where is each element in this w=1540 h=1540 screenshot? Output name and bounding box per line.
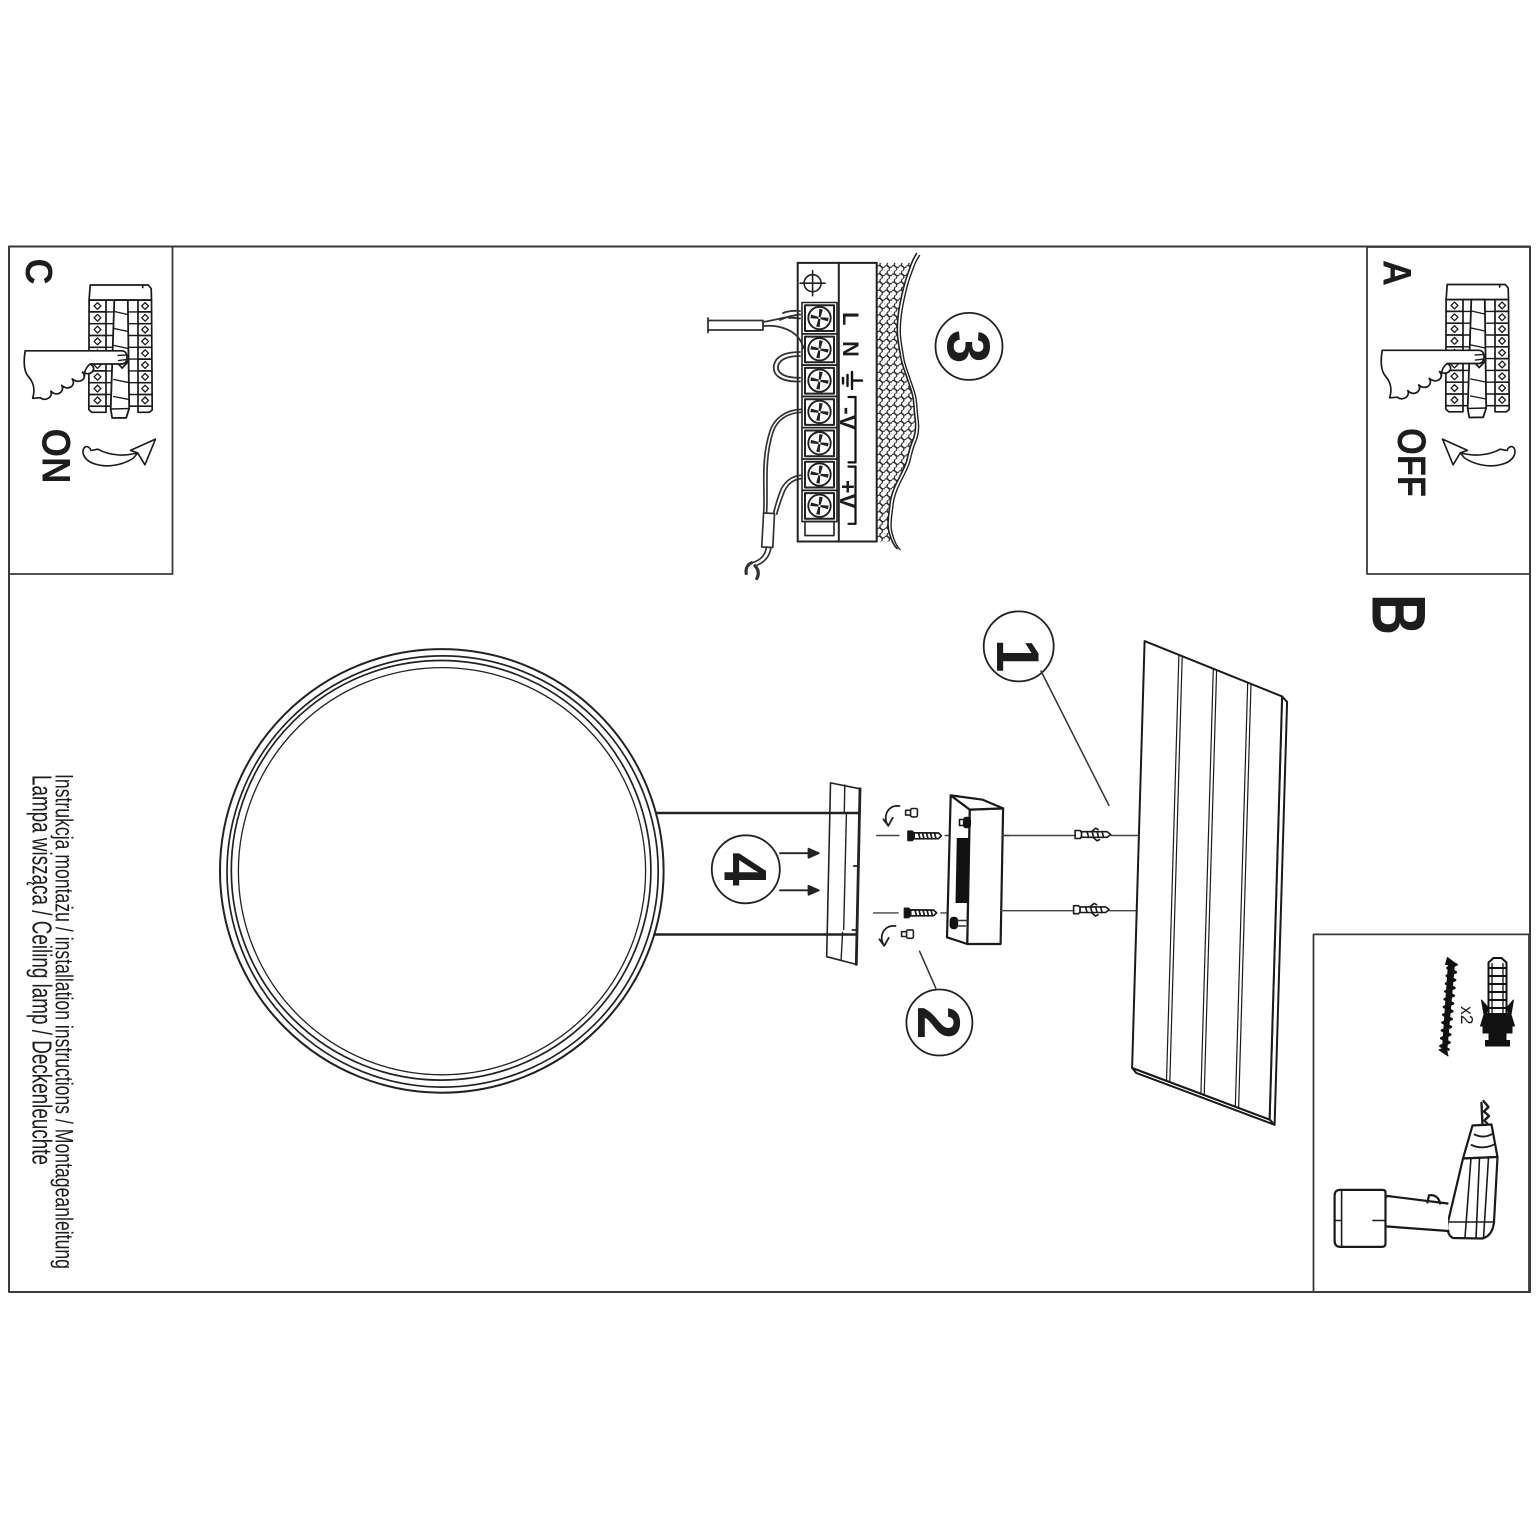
svg-text:B: B (1356, 594, 1441, 635)
svg-text:C: C (17, 259, 59, 285)
svg-text:ON: ON (34, 429, 78, 484)
svg-text:L: L (838, 312, 863, 325)
svg-text:OFF: OFF (1389, 428, 1433, 497)
svg-text:N: N (838, 341, 863, 357)
svg-text:1: 1 (984, 639, 1051, 672)
svg-text:Lampa wisząca / Ceiling lamp /: Lampa wisząca / Ceiling lamp / Deckenleu… (27, 775, 58, 1165)
svg-text:x2: x2 (1457, 1006, 1477, 1024)
svg-text:4: 4 (712, 853, 779, 887)
svg-text:3: 3 (935, 330, 1002, 363)
svg-text:-V: -V (835, 407, 861, 431)
svg-text:+V: +V (835, 480, 861, 509)
svg-text:A: A (1375, 260, 1419, 286)
svg-text:2: 2 (905, 1006, 972, 1039)
